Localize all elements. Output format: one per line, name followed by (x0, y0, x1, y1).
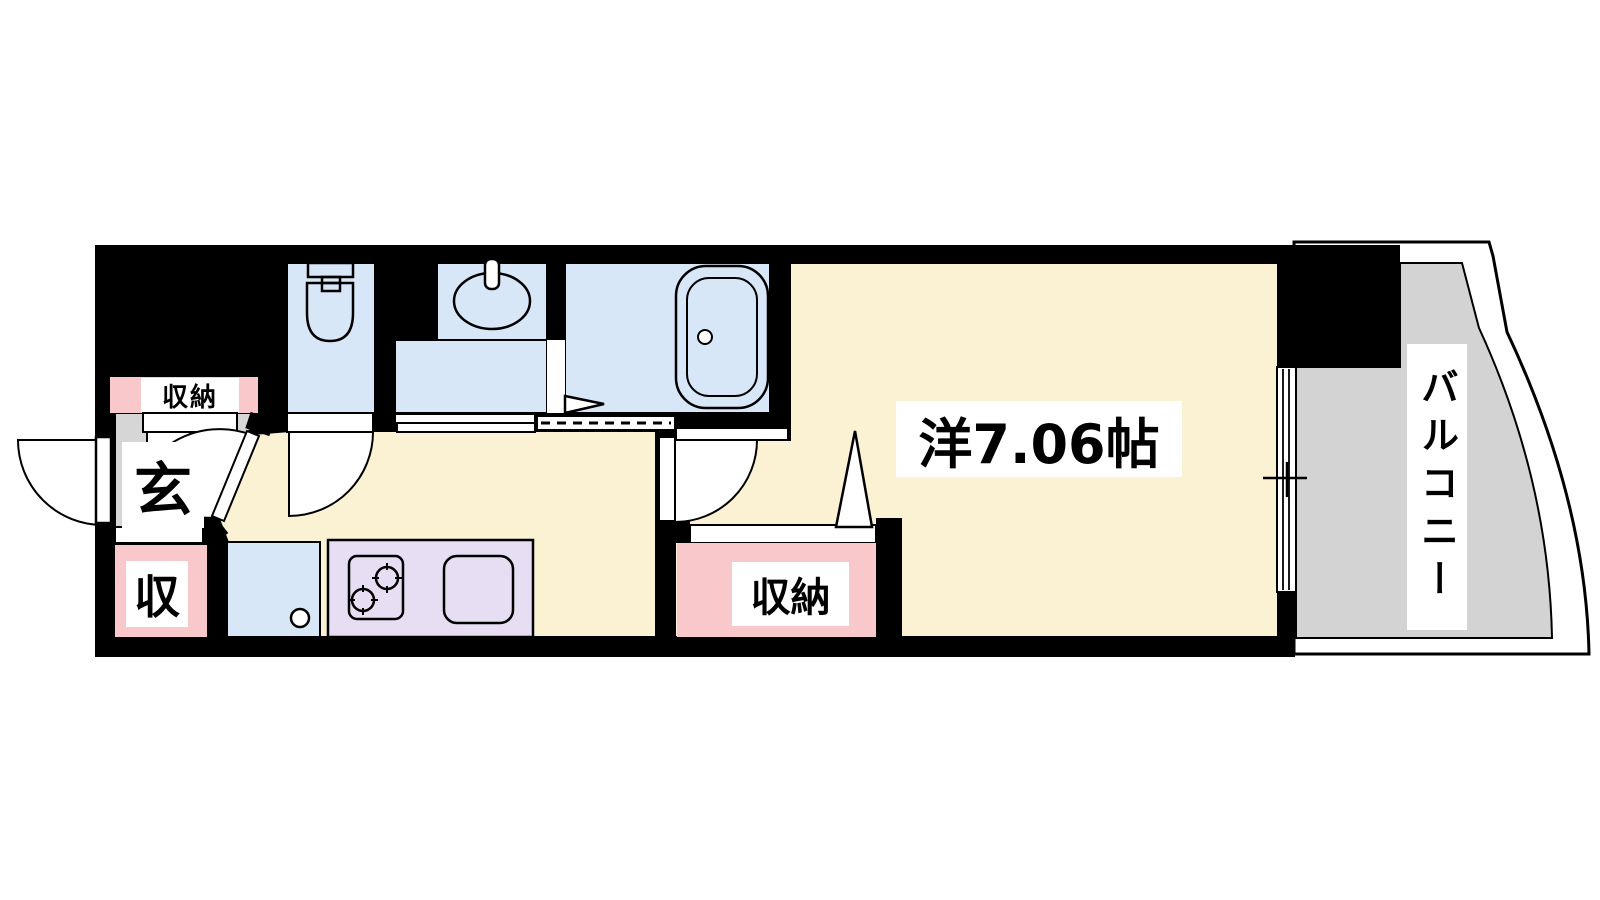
bathroom-opening (547, 340, 565, 413)
genkan-step (115, 527, 203, 543)
main-door-threshold (676, 428, 788, 440)
diagonal-wall-top (248, 420, 272, 428)
storage-upper-label: 収納 (141, 378, 239, 412)
main-room-label: 洋7.06帖 (896, 401, 1182, 477)
main-door (659, 437, 675, 521)
storage-closet-label: 収納 (732, 562, 849, 626)
floor-plan-drawing (0, 0, 1600, 900)
balcony-wall-block (1280, 245, 1400, 367)
toilet-door (287, 413, 373, 432)
entrance-door-swing (18, 440, 103, 525)
room-bathroom (565, 263, 770, 413)
washer-drain-icon (291, 609, 309, 627)
storage-small-label: 収 (126, 561, 188, 627)
room-toilet (287, 263, 375, 413)
balcony-label-text: バルコニー (1410, 367, 1465, 607)
washroom-sliding-door (395, 414, 675, 432)
floor-plan: 洋7.06帖 バルコニー 収納 収納 収 玄 (0, 0, 1600, 900)
entrance-label: 玄 (122, 442, 204, 528)
closet-wall-right (876, 518, 902, 637)
entrance-door (96, 437, 111, 523)
balcony-label: バルコニー (1407, 344, 1467, 630)
room-washroom (395, 340, 547, 413)
